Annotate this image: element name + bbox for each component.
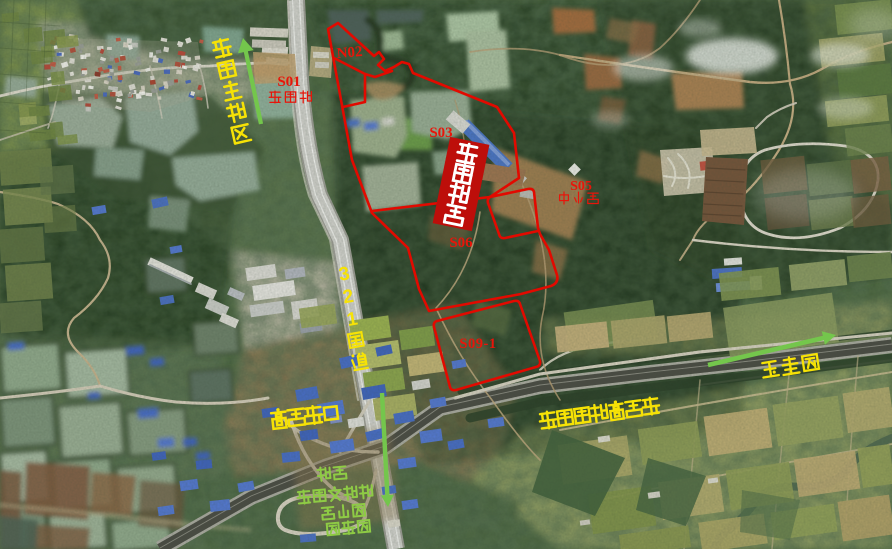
svg-text:S09-1: S09-1: [459, 336, 496, 352]
svg-text:S03: S03: [429, 125, 452, 141]
svg-text:S05: S05: [570, 179, 592, 194]
svg-text:N02: N02: [336, 44, 363, 62]
svg-text:S01: S01: [277, 74, 300, 90]
svg-text:S06: S06: [449, 235, 473, 251]
